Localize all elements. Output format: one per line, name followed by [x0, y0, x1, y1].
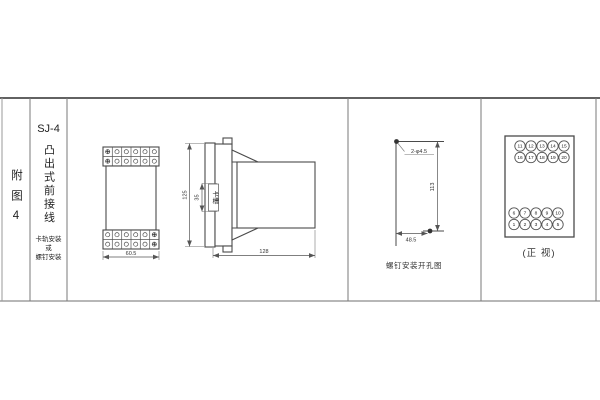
side-height-dim-label: 125 — [183, 190, 189, 199]
terminal-number: 9 — [546, 211, 549, 217]
terminal-number: 11 — [518, 144, 523, 150]
terminal-number: 6 — [513, 211, 516, 217]
mount-hole-bottom — [428, 229, 433, 234]
figure-drawing-svg: 60.5 125 35 128 — [0, 0, 600, 400]
figure-page: 60.5 125 35 128 — [0, 0, 600, 400]
figure-index-cell: 附图4 — [2, 98, 30, 301]
mount-note-line2: 或 — [36, 245, 62, 254]
model-info-cell: SJ-4 凸出式前接线 卡轨安装 或 螺钉安装 — [30, 98, 67, 301]
drill-caption: 螺钉安装开孔图 — [386, 260, 442, 270]
terminal-number: 2 — [524, 222, 527, 228]
model-subtitle: 凸出式前接线 — [41, 144, 57, 225]
mount-note-line1: 卡轨安装 — [36, 236, 62, 245]
terminal-number: 4 — [546, 222, 549, 228]
hole-size-label: 2-φ4.5 — [411, 149, 427, 155]
slot-label: 卡槽 — [208, 184, 219, 211]
front-width-dim-label: 60.5 — [126, 251, 137, 257]
terminal-number: 1 — [513, 222, 516, 228]
terminal-number: 3 — [535, 222, 538, 228]
drill-horizontal-dim-label: 48.5 — [406, 238, 417, 244]
terminal-number: 5 — [557, 222, 560, 228]
drill-vertical-dim-label: 113 — [430, 183, 436, 192]
terminal-front-view: 11 12 13 14 15 16 17 18 19 20 6 7 8 9 10… — [505, 136, 574, 259]
terminal-number: 12 — [528, 144, 534, 150]
side-depth-dim-label: 128 — [259, 249, 268, 255]
terminal-number: 17 — [528, 155, 534, 161]
side-view-drawing: 125 35 128 — [183, 138, 316, 258]
terminal-view-caption: (正 视) — [523, 247, 556, 259]
terminal-number: 14 — [550, 144, 556, 150]
terminal-number: 13 — [539, 144, 545, 150]
terminal-number: 20 — [561, 155, 567, 161]
mount-note: 卡轨安装 或 螺钉安装 — [36, 236, 62, 262]
terminal-number: 7 — [524, 211, 527, 217]
front-view-drawing: 60.5 — [103, 147, 159, 260]
terminal-number: 15 — [561, 144, 567, 150]
terminal-number: 8 — [535, 211, 538, 217]
side-slot-dim-label: 35 — [195, 194, 201, 200]
terminal-number: 10 — [555, 211, 561, 217]
mount-hole-top — [394, 139, 399, 144]
terminal-number: 16 — [517, 155, 523, 161]
mount-note-line3: 螺钉安装 — [36, 254, 62, 263]
model-title: SJ-4 — [37, 123, 60, 135]
terminal-number: 19 — [550, 155, 556, 161]
screw-hole-drawing: 2-φ4.5 113 48.5 螺钉安装开孔图 — [386, 139, 444, 270]
terminal-number: 18 — [539, 155, 545, 161]
figure-index-label: 附图4 — [8, 169, 24, 231]
